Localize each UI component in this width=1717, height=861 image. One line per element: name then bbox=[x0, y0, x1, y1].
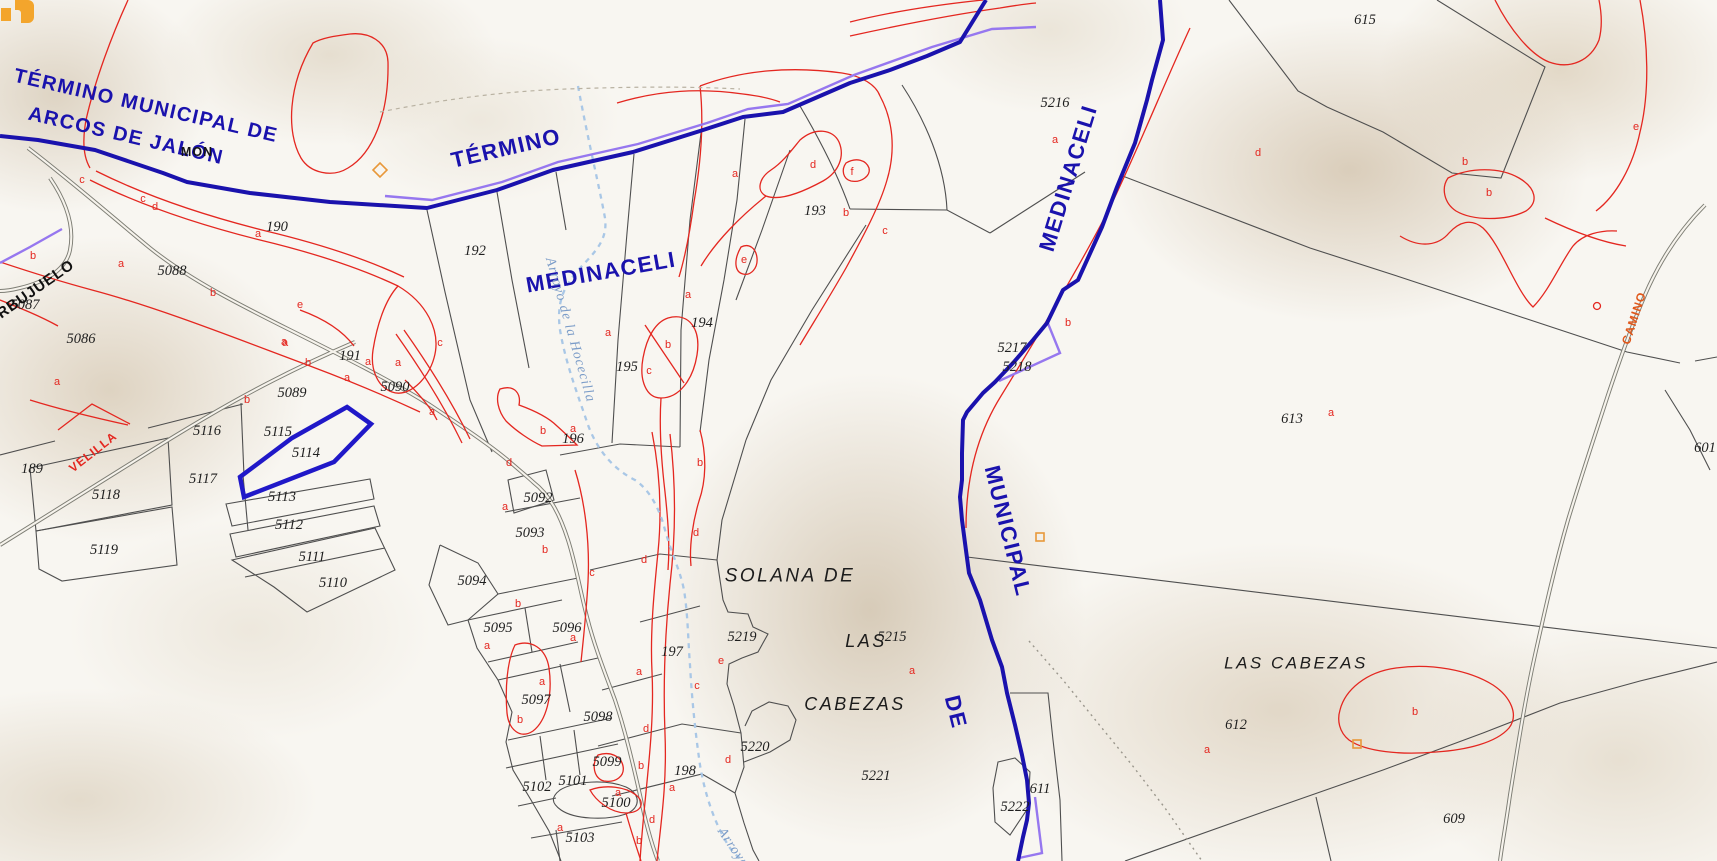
letter-label-a: a bbox=[1052, 134, 1059, 146]
letter-label-b: b bbox=[1412, 706, 1418, 718]
letter-label-d: d bbox=[649, 814, 655, 826]
place-label-las: LAS bbox=[845, 631, 887, 651]
letter-label-b: b bbox=[1486, 187, 1492, 199]
letter-label-a: a bbox=[365, 356, 372, 368]
stream-path bbox=[559, 86, 745, 861]
letter-label-a: a bbox=[54, 376, 61, 388]
letter-label-b: b bbox=[638, 760, 644, 772]
parcel-label-5217[interactable]: 5217 bbox=[998, 340, 1028, 356]
letter-label-d: d bbox=[725, 754, 731, 766]
parcel-label-5220[interactable]: 5220 bbox=[741, 739, 771, 755]
parcel-label-5114[interactable]: 5114 bbox=[292, 445, 320, 461]
letter-label-a: a bbox=[344, 372, 351, 384]
parcel-label-197[interactable]: 197 bbox=[661, 644, 684, 660]
letter-label-b: b bbox=[542, 544, 548, 556]
parcel-label-5222[interactable]: 5222 bbox=[1001, 799, 1030, 815]
letter-label-a: a bbox=[909, 665, 916, 677]
parcel-label-5110[interactable]: 5110 bbox=[319, 575, 348, 591]
letter-label-e: e bbox=[741, 254, 747, 266]
parcel-label-5117[interactable]: 5117 bbox=[189, 471, 218, 487]
parcel-label-194[interactable]: 194 bbox=[691, 315, 713, 331]
parcel-label-609[interactable]: 609 bbox=[1443, 811, 1466, 827]
letter-label-e: e bbox=[1633, 121, 1639, 133]
parcel-label-191[interactable]: 191 bbox=[339, 348, 361, 364]
parcel-label-5218[interactable]: 5218 bbox=[1003, 359, 1033, 375]
parcel-label-5102[interactable]: 5102 bbox=[523, 779, 552, 795]
letter-label-a: a bbox=[429, 406, 436, 418]
letter-label-c: c bbox=[882, 225, 888, 237]
letter-label-a: a bbox=[570, 423, 577, 435]
letter-label-b: b bbox=[636, 835, 642, 847]
orange-markers bbox=[373, 163, 1361, 748]
letter-label-b: b bbox=[540, 425, 546, 437]
letter-label-b: b bbox=[210, 287, 216, 299]
parcel-label-5094[interactable]: 5094 bbox=[458, 573, 487, 589]
letter-label-a: a bbox=[118, 258, 125, 270]
letter-label-a: a bbox=[1204, 744, 1211, 756]
parcel-label-5089[interactable]: 5089 bbox=[278, 385, 308, 401]
parcel-label-5088[interactable]: 5088 bbox=[158, 263, 188, 279]
letter-label-d: d bbox=[152, 201, 158, 213]
letter-label-b: b bbox=[515, 598, 521, 610]
parcel-label-5101[interactable]: 5101 bbox=[559, 773, 588, 789]
letter-label-c: c bbox=[79, 174, 85, 186]
parcel-label-5096[interactable]: 5096 bbox=[553, 620, 583, 636]
letter-label-a: a bbox=[669, 782, 676, 794]
parcel-label-5119[interactable]: 5119 bbox=[90, 542, 119, 558]
letter-label-a: a bbox=[605, 327, 612, 339]
parcel-label-5086[interactable]: 5086 bbox=[67, 331, 97, 347]
parcel-label-5221[interactable]: 5221 bbox=[862, 768, 891, 784]
municipality-label-municipal: MUNICIPAL bbox=[980, 463, 1037, 599]
app-logo-icon[interactable] bbox=[1, 0, 34, 23]
place-label-las-cabezas: LAS CABEZAS bbox=[1224, 654, 1368, 673]
letter-label-a: a bbox=[502, 501, 509, 513]
road-label-camino: CAMINO bbox=[1619, 290, 1649, 346]
letter-label-d: d bbox=[1255, 147, 1261, 159]
letter-label-b: b bbox=[244, 394, 250, 406]
square-marker bbox=[1036, 533, 1044, 541]
letter-label-a: a bbox=[484, 640, 491, 652]
letter-label-b: b bbox=[665, 339, 671, 351]
letter-label-e: e bbox=[718, 655, 724, 667]
parcel-label-612[interactable]: 612 bbox=[1225, 717, 1247, 733]
parcel-label-5118[interactable]: 5118 bbox=[92, 487, 121, 503]
misc-label-mon: MON bbox=[181, 145, 213, 159]
letter-label-a: a bbox=[557, 822, 564, 834]
letter-label-a: a bbox=[685, 289, 692, 301]
parcel-label-190[interactable]: 190 bbox=[266, 219, 289, 235]
letter-label-a: a bbox=[255, 228, 262, 240]
parcel-label-189[interactable]: 189 bbox=[21, 461, 44, 477]
parcel-label-195[interactable]: 195 bbox=[616, 359, 638, 375]
parcel-label-193[interactable]: 193 bbox=[804, 203, 826, 219]
map-labels: TÉRMINO MUNICIPAL DEARCOS DE JALÓNTÉRMIN… bbox=[0, 12, 1716, 861]
letter-label-d: d bbox=[643, 723, 649, 735]
road-label-velilla: VELILLA bbox=[66, 429, 120, 475]
parcel-label-5113[interactable]: 5113 bbox=[268, 489, 296, 505]
parcel-label-5115[interactable]: 5115 bbox=[264, 424, 292, 440]
place-label-barbujuelo: BARBUJUELO bbox=[0, 256, 78, 335]
letter-label-d: d bbox=[693, 527, 699, 539]
letter-label-d: d bbox=[506, 457, 512, 469]
letter-label-b: b bbox=[1065, 317, 1071, 329]
letter-label-c: c bbox=[589, 567, 595, 579]
municipality-label-de: DE bbox=[940, 693, 972, 732]
letter-label-b: b bbox=[517, 714, 523, 726]
parcel-label-5219[interactable]: 5219 bbox=[728, 629, 758, 645]
parcel-label-5093[interactable]: 5093 bbox=[516, 525, 545, 541]
parcel-label-5116[interactable]: 5116 bbox=[193, 423, 222, 439]
letter-label-a: a bbox=[282, 337, 289, 349]
parcel-label-601[interactable]: 601 bbox=[1694, 440, 1716, 456]
municipality-label-medinaceli: MEDINACELI bbox=[1034, 102, 1102, 255]
letter-label-c: c bbox=[437, 337, 443, 349]
place-label-solana-de: SOLANA DE bbox=[725, 566, 856, 587]
parcel-label-5111[interactable]: 5111 bbox=[299, 549, 326, 565]
letter-label-a: a bbox=[539, 676, 546, 688]
letter-label-c: c bbox=[646, 365, 652, 377]
letter-label-d: d bbox=[641, 554, 647, 566]
letter-label-b: b bbox=[697, 457, 703, 469]
letter-label-e: e bbox=[297, 299, 303, 311]
parcel-label-198[interactable]: 198 bbox=[674, 763, 697, 779]
parcel-label-5092[interactable]: 5092 bbox=[524, 490, 553, 506]
parcel-label-5216[interactable]: 5216 bbox=[1041, 95, 1071, 111]
diamond-marker bbox=[373, 163, 387, 177]
letter-label-b: b bbox=[30, 250, 36, 262]
map-canvas[interactable]: TÉRMINO MUNICIPAL DEARCOS DE JALÓNTÉRMIN… bbox=[0, 0, 1717, 861]
parcel-label-613[interactable]: 613 bbox=[1281, 411, 1303, 427]
letter-label-a: a bbox=[615, 787, 622, 799]
letter-label-a: a bbox=[636, 666, 643, 678]
parcel-label-5103[interactable]: 5103 bbox=[566, 830, 595, 846]
parcel-label-611[interactable]: 611 bbox=[1030, 781, 1051, 797]
parcel-label-5090[interactable]: 5090 bbox=[381, 379, 411, 395]
letter-label-a: a bbox=[395, 357, 402, 369]
letter-label-c: c bbox=[694, 680, 700, 692]
parcel-label-192[interactable]: 192 bbox=[464, 243, 486, 259]
parcel-label-5097[interactable]: 5097 bbox=[522, 692, 552, 708]
letter-label-a: a bbox=[732, 168, 739, 180]
letter-label-b: b bbox=[305, 357, 311, 369]
place-label-cabezas: CABEZAS bbox=[804, 694, 906, 714]
letter-label-b: b bbox=[1462, 156, 1468, 168]
letter-label-f: f bbox=[850, 166, 854, 178]
parcel-label-5098[interactable]: 5098 bbox=[584, 709, 614, 725]
letter-label-a: a bbox=[570, 632, 577, 644]
parcel-label-5112[interactable]: 5112 bbox=[275, 517, 303, 533]
red-circle-marker bbox=[1594, 303, 1601, 310]
letter-label-c: c bbox=[140, 193, 146, 205]
parcel-label-5095[interactable]: 5095 bbox=[484, 620, 513, 636]
parcel-label-615[interactable]: 615 bbox=[1354, 12, 1376, 28]
letter-label-d: d bbox=[810, 159, 816, 171]
dotted-path bbox=[1029, 641, 1202, 861]
letter-label-a: a bbox=[1328, 407, 1335, 419]
parcel-label-5099[interactable]: 5099 bbox=[593, 754, 623, 770]
letter-label-b: b bbox=[843, 207, 849, 219]
